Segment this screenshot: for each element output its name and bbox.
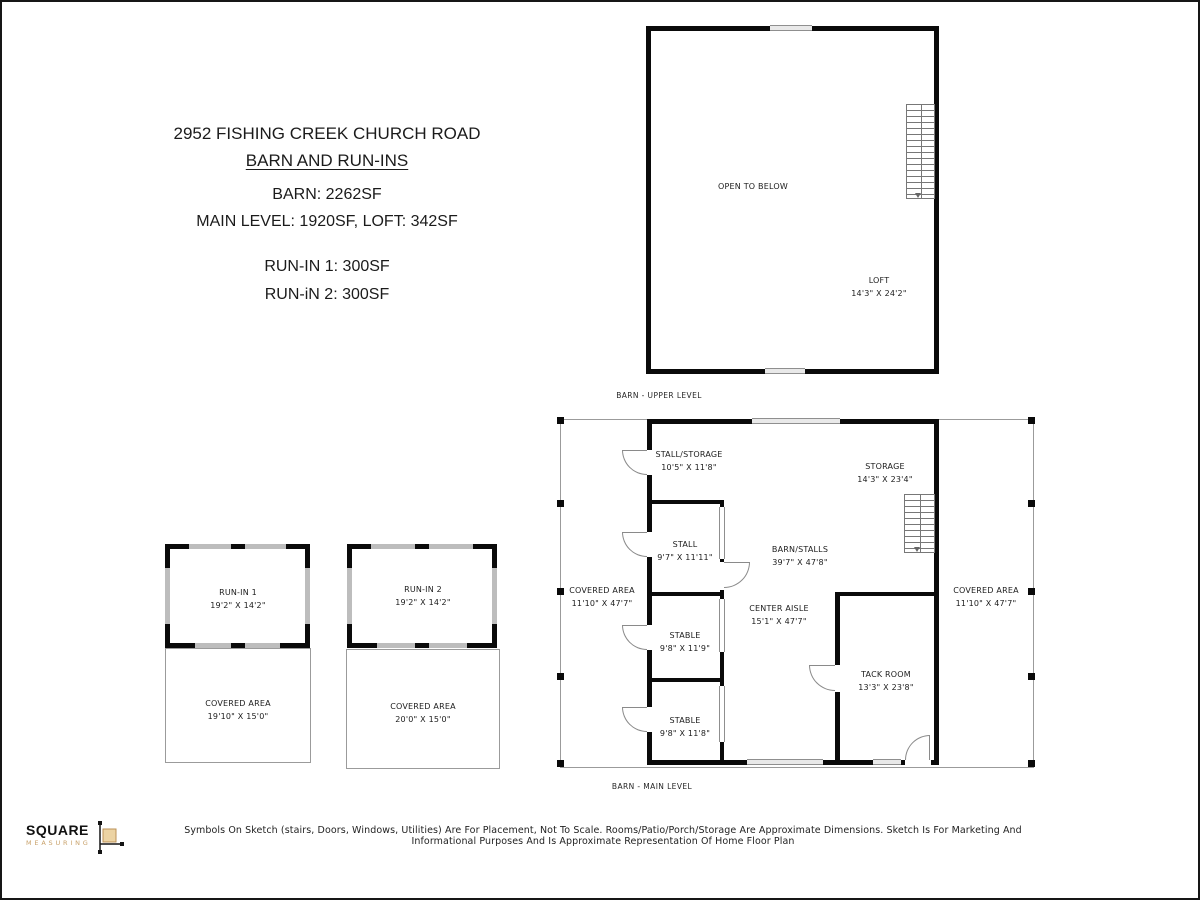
room-name: COVERED AREA: [178, 697, 298, 710]
room-dims: 9'8" X 11'8": [625, 727, 745, 740]
wall: [347, 544, 352, 568]
wall: [305, 624, 310, 648]
floor-plan-page: 2952 FISHING CREEK CHURCH ROAD BARN AND …: [0, 0, 1200, 900]
wall: [347, 624, 352, 648]
room-name: STALL: [625, 538, 745, 551]
room-dims: 10'5" X 11'8": [629, 461, 749, 474]
storage-label: STORAGE 14'3" X 23'4": [825, 460, 945, 486]
post: [1028, 500, 1035, 507]
room-dims: 39'7" X 47'8": [740, 556, 860, 569]
post: [557, 500, 564, 507]
upper-level-plan: [646, 26, 939, 374]
room-name: TACK ROOM: [826, 668, 946, 681]
loft-label: LOFT 14'3" X 24'2": [819, 274, 939, 300]
logo-text: SQUARE MEASURING: [26, 822, 91, 847]
center-aisle-label: CENTER AISLE 15'1" X 47'7": [719, 602, 839, 628]
room-dims: 14'3" X 24'2": [819, 287, 939, 300]
post: [1028, 673, 1035, 680]
post: [557, 417, 564, 424]
post: [1028, 760, 1035, 767]
title-block: 2952 FISHING CREEK CHURCH ROAD BARN AND …: [152, 124, 502, 304]
sliding-door-marker: [747, 759, 823, 765]
stairs-main: [904, 494, 935, 553]
address-title: 2952 FISHING CREEK CHURCH ROAD: [152, 124, 502, 144]
door-opening: [905, 760, 931, 765]
window-marker: [765, 368, 805, 374]
open-to-below-label: OPEN TO BELOW: [693, 180, 813, 193]
run-in-2-label: RUN-IN 2 19'2" X 14'2": [363, 583, 483, 609]
room-dims: 9'7" X 11'11": [625, 551, 745, 564]
logo-secondary-text: MEASURING: [26, 839, 91, 847]
wall: [647, 678, 724, 682]
window-marker: [752, 418, 840, 424]
stairs-direction-arrow: [915, 193, 921, 198]
room-dims: 19'10" X 15'0": [178, 710, 298, 723]
stairs-upper: [906, 104, 935, 199]
wall: [165, 624, 170, 648]
run-in-1-covered-label: COVERED AREA 19'10" X 15'0": [178, 697, 298, 723]
room-name: COVERED AREA: [542, 584, 662, 597]
run-in-1-area: RUN-IN 1: 300SF: [152, 258, 502, 276]
window-marker: [770, 25, 812, 31]
room-name: LOFT: [819, 274, 939, 287]
room-name: COVERED AREA: [363, 700, 483, 713]
disclaimer-text: Symbols On Sketch (stairs, Doors, Window…: [172, 825, 1034, 847]
stall-storage-label: STALL/STORAGE 10'5" X 11'8": [629, 448, 749, 474]
stable-1-label: STABLE 9'8" X 11'9": [625, 629, 745, 655]
room-name: BARN/STALLS: [740, 543, 860, 556]
room-dims: 11'10" X 47'7": [542, 597, 662, 610]
main-level-caption: BARN - MAIN LEVEL: [592, 782, 712, 791]
wall: [492, 544, 497, 568]
post: [1028, 417, 1035, 424]
tack-room-label: TACK ROOM 13'3" X 23'8": [826, 668, 946, 694]
covered-area-left-label: COVERED AREA 11'10" X 47'7": [542, 584, 662, 610]
run-in-1-label: RUN-IN 1 19'2" X 14'2": [178, 586, 298, 612]
room-name: STALL/STORAGE: [629, 448, 749, 461]
barn-level-areas: MAIN LEVEL: 1920SF, LOFT: 342SF: [152, 213, 502, 231]
wall: [492, 624, 497, 648]
room-dims: 20'0" X 15'0": [363, 713, 483, 726]
barn-stalls-label: BARN/STALLS 39'7" X 47'8": [740, 543, 860, 569]
room-dims: 14'3" X 23'4": [825, 473, 945, 486]
wall: [231, 544, 245, 549]
run-in-2-area: RUN-iN 2: 300SF: [152, 286, 502, 304]
wall: [415, 643, 429, 648]
room-dims: 9'8" X 11'9": [625, 642, 745, 655]
square-measuring-logo: SQUARE MEASURING: [26, 822, 126, 856]
room-name: STABLE: [625, 714, 745, 727]
wall: [165, 544, 170, 568]
room-name: STORAGE: [825, 460, 945, 473]
stairs-divider: [920, 495, 921, 552]
run-in-2-covered-label: COVERED AREA 20'0" X 15'0": [363, 700, 483, 726]
covered-area-right-label: COVERED AREA 11'10" X 47'7": [926, 584, 1046, 610]
wall: [647, 500, 724, 504]
stairs-divider: [921, 105, 922, 198]
room-name: RUN-IN 2: [363, 583, 483, 596]
post: [557, 673, 564, 680]
room-dims: 19'2" X 14'2": [363, 596, 483, 609]
room-name: STABLE: [625, 629, 745, 642]
room-dims: 19'2" X 14'2": [178, 599, 298, 612]
room-name: COVERED AREA: [926, 584, 1046, 597]
room-dims: 15'1" X 47'7": [719, 615, 839, 628]
room-name: CENTER AISLE: [719, 602, 839, 615]
stall-label: STALL 9'7" X 11'11": [625, 538, 745, 564]
room-dims: 13'3" X 23'8": [826, 681, 946, 694]
room-dims: 11'10" X 47'7": [926, 597, 1046, 610]
room-name: RUN-IN 1: [178, 586, 298, 599]
measuring-tool-icon: [94, 820, 126, 856]
wall: [415, 544, 429, 549]
barn-total-area: BARN: 2262SF: [152, 186, 502, 204]
window-marker: [873, 759, 901, 765]
plan-subtitle: BARN AND RUN-INS: [152, 151, 502, 171]
stairs-direction-arrow: [914, 547, 920, 552]
stable-2-label: STABLE 9'8" X 11'8": [625, 714, 745, 740]
wall: [835, 592, 939, 596]
wall: [305, 544, 310, 568]
upper-level-caption: BARN - UPPER LEVEL: [599, 391, 719, 400]
logo-primary-text: SQUARE: [26, 822, 91, 838]
post: [557, 760, 564, 767]
